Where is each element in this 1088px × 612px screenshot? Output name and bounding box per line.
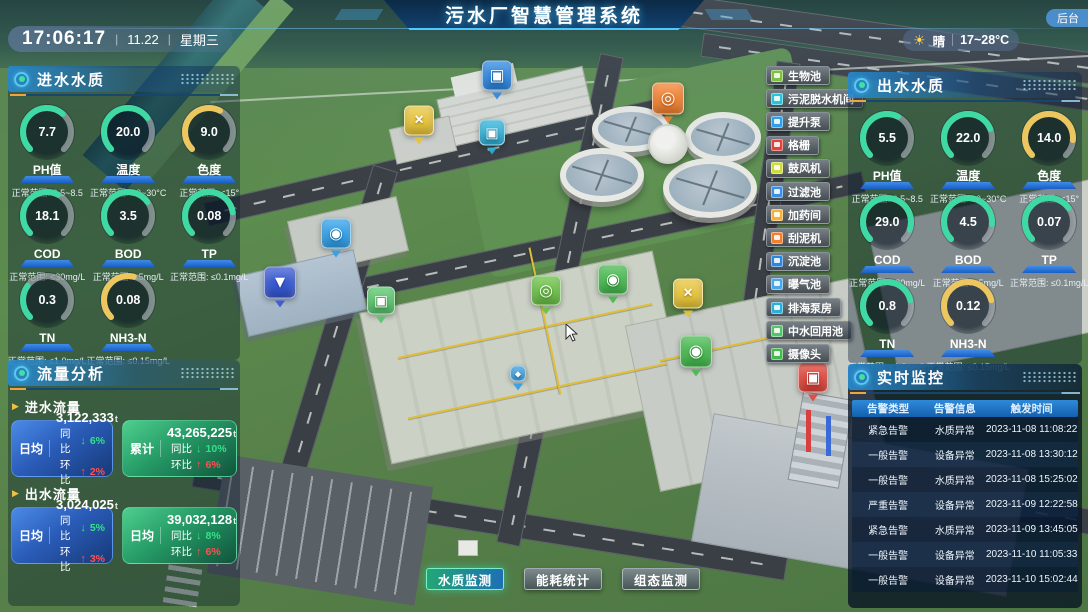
flow-value: 3,122,333 bbox=[56, 410, 114, 425]
clock-time: 17:06:17 bbox=[22, 28, 106, 50]
gauge-label: TN bbox=[848, 335, 926, 357]
alarm-cell: 设备异常 bbox=[924, 497, 985, 512]
realtime-monitor-panel: 实时监控 告警类型告警信息触发时间 紧急告警水质异常2023-11-08 11:… bbox=[848, 364, 1082, 608]
gauge-label: PH值 bbox=[848, 167, 926, 189]
panel-header: 进水水质 bbox=[8, 66, 240, 92]
facility-button-曝气池[interactable]: 曝气池 bbox=[766, 275, 830, 294]
dewatering-icon[interactable]: ▣ bbox=[479, 120, 505, 146]
facility-label: 刮泥机 bbox=[788, 230, 821, 246]
tab-组态监测[interactable]: 组态监测 bbox=[622, 568, 700, 590]
down-arrow-icon: ↓ bbox=[80, 435, 86, 447]
yoy-label: 同比 bbox=[171, 441, 192, 456]
down-arrow-icon: ↓ bbox=[196, 443, 202, 455]
facility-button-过滤池[interactable]: 过滤池 bbox=[766, 182, 830, 201]
facility-icon bbox=[771, 162, 783, 174]
mom-label: 环比 bbox=[171, 457, 192, 472]
lift-pump-icon[interactable]: ◉ bbox=[321, 219, 351, 249]
gauge-COD: 18.1COD正常范围: ≤30mg/L bbox=[8, 188, 86, 270]
separator: | bbox=[115, 32, 118, 46]
label-trapezoid bbox=[182, 260, 236, 267]
down-arrow-icon: ↓ bbox=[196, 530, 202, 542]
unit-label: t bbox=[233, 516, 236, 526]
gauge-value: 20.0 bbox=[100, 104, 156, 160]
gauge-label-text: TN bbox=[879, 337, 895, 351]
separator: | bbox=[168, 32, 171, 46]
mom-label: 环比 bbox=[60, 544, 76, 574]
influent-quality-panel: 进水水质 7.7PH值正常范围: 6.5~8.520.0温度正常范围: 20~3… bbox=[8, 66, 240, 360]
scraper-icon[interactable]: ◎ bbox=[652, 83, 684, 115]
alarm-cell: 一般告警 bbox=[852, 547, 924, 562]
gauge-value: 3.5 bbox=[100, 188, 156, 244]
alarm-column-header: 触发时间 bbox=[985, 401, 1078, 416]
panel-title: 出水水质 bbox=[877, 75, 1014, 96]
alarm-cell: 水质异常 bbox=[924, 472, 985, 487]
mom-value: 2% bbox=[90, 466, 105, 478]
effluent-gauge-grid: 5.5PH值正常范围: 6.5~8.522.0温度正常范围: 20~30°C14… bbox=[848, 102, 1082, 360]
gauge-value: 7.7 bbox=[19, 104, 75, 160]
flow-value: 43,265,225 bbox=[167, 425, 232, 440]
facility-icon bbox=[771, 255, 783, 267]
label-trapezoid bbox=[941, 266, 995, 273]
facility-icon bbox=[771, 278, 783, 290]
flow-sublabel: ▶出水流量 bbox=[12, 484, 236, 503]
facility-label: 排海泵房 bbox=[788, 300, 832, 316]
unit-label: t bbox=[115, 414, 118, 424]
alarm-cell: 一般告警 bbox=[852, 572, 924, 587]
gauge-dial: 4.5 bbox=[940, 194, 996, 250]
alarm-table-body: 紧急告警水质异常2023-11-08 11:08:22一般告警设备异常2023-… bbox=[852, 417, 1078, 592]
label-trapezoid bbox=[101, 344, 155, 351]
gauge-value: 4.5 bbox=[940, 194, 996, 250]
settling-pool-icon-wrap: ▣ bbox=[482, 61, 512, 100]
mom-label: 环比 bbox=[60, 457, 76, 487]
filter-pool-icon[interactable]: ▼ bbox=[264, 267, 296, 299]
app-title-banner: 污水厂智慧管理系统 bbox=[384, 0, 704, 30]
facility-icon bbox=[771, 302, 783, 314]
gauge-TP: 0.08TP正常范围: ≤0.1mg/L bbox=[170, 188, 248, 270]
gauge-温度: 22.0温度正常范围: 20~30°C bbox=[926, 110, 1009, 192]
bio-pool-icon-wrap: ◎ bbox=[531, 276, 561, 315]
panel-title: 实时监控 bbox=[877, 367, 1014, 388]
label-trapezoid bbox=[101, 260, 155, 267]
facility-icon bbox=[771, 209, 783, 221]
flow-cards: 日均3,024,025t同比↓5%环比↑3%日均39,032,128t同比↓8%… bbox=[8, 507, 240, 564]
mom-value: 3% bbox=[90, 553, 105, 565]
gauge-value: 9.0 bbox=[181, 104, 237, 160]
yoy-label: 同比 bbox=[171, 528, 192, 543]
unit-label: t bbox=[115, 501, 118, 511]
gauge-label: BOD bbox=[926, 251, 1009, 273]
camera-icon-2[interactable]: ◉ bbox=[680, 336, 712, 368]
facility-button-加药间[interactable]: 加药间 bbox=[766, 205, 830, 224]
gauge-value: 14.0 bbox=[1021, 110, 1077, 166]
gauge-label-text: TP bbox=[202, 247, 217, 261]
pointer-icon bbox=[683, 311, 693, 318]
gauge-label: TN bbox=[8, 329, 86, 351]
gauge-value: 0.08 bbox=[100, 272, 156, 328]
alarm-row[interactable]: 严重告警设备异常2023-11-09 12:22:58 bbox=[852, 492, 1078, 517]
gauge-dial: 0.12 bbox=[940, 278, 996, 334]
label-trapezoid bbox=[860, 266, 914, 273]
facility-label: 中水回用池 bbox=[788, 323, 843, 339]
gauge-dial: 18.1 bbox=[19, 188, 75, 244]
label-trapezoid bbox=[941, 182, 995, 189]
flow-value: 3,024,025 bbox=[56, 497, 114, 512]
up-arrow-icon: ↑ bbox=[80, 466, 86, 478]
pointer-icon bbox=[376, 317, 386, 324]
facility-label: 鼓风机 bbox=[788, 160, 821, 176]
alarm-cell: 严重告警 bbox=[852, 497, 924, 512]
panel-underline bbox=[850, 392, 1080, 394]
pointer-icon bbox=[331, 251, 341, 258]
gauge-label-text: BOD bbox=[115, 247, 142, 261]
gauge-label-text: COD bbox=[34, 247, 61, 261]
triangle-icon: ▶ bbox=[12, 488, 20, 499]
flow-card: 日均39,032,128t同比↓8%环比↑6% bbox=[122, 507, 237, 564]
lift-pump-icon-wrap: ◉ bbox=[321, 219, 351, 258]
effluent-quality-panel: 出水水质 5.5PH值正常范围: 6.5~8.522.0温度正常范围: 20~3… bbox=[848, 72, 1082, 364]
up-arrow-icon: ↑ bbox=[80, 553, 86, 565]
facility-button-沉淀池[interactable]: 沉淀池 bbox=[766, 252, 830, 271]
yoy-value: 5% bbox=[90, 522, 105, 534]
panel-bullet-icon bbox=[14, 366, 29, 381]
gauge-label: PH值 bbox=[8, 161, 86, 183]
gauge-label-text: 色度 bbox=[197, 163, 221, 177]
unit-label: t bbox=[233, 429, 236, 439]
flow-values: 39,032,128t同比↓8%环比↑6% bbox=[167, 512, 229, 559]
alarm-row[interactable]: 一般告警设备异常2023-11-10 11:05:33 bbox=[852, 542, 1078, 567]
alarm-table: 告警类型告警信息触发时间 紧急告警水质异常2023-11-08 11:08:22… bbox=[852, 400, 1078, 592]
facility-button-中水回用池[interactable]: 中水回用池 bbox=[766, 321, 852, 340]
label-trapezoid bbox=[20, 344, 74, 351]
gauge-dial: 9.0 bbox=[181, 104, 237, 160]
alarm-row[interactable]: 紧急告警水质异常2023-11-08 11:08:22 bbox=[852, 417, 1078, 442]
gauge-value: 18.1 bbox=[19, 188, 75, 244]
facility-icon bbox=[771, 232, 783, 244]
flow-values: 3,122,333t同比↓6%环比↑2% bbox=[56, 410, 105, 487]
facility-icon bbox=[771, 325, 783, 337]
gauge-value: 22.0 bbox=[940, 110, 996, 166]
gauge-label: 色度 bbox=[170, 161, 248, 183]
facility-icon bbox=[771, 348, 783, 360]
alarm-row[interactable]: 紧急告警水质异常2023-11-09 13:45:05 bbox=[852, 517, 1078, 542]
camera-icon[interactable]: ◉ bbox=[598, 265, 628, 295]
weather-bar: ☀ 晴 17~28°C bbox=[903, 29, 1019, 51]
alarm-cell: 一般告警 bbox=[852, 447, 924, 462]
gauge-BOD: 4.5BOD正常范围: ≤5mg/L bbox=[926, 194, 1009, 276]
panel-title: 流量分析 bbox=[37, 363, 172, 384]
mom-value: 6% bbox=[206, 459, 221, 471]
alarm-table-header: 告警类型告警信息触发时间 bbox=[852, 400, 1078, 417]
reuse-pool-icon-wrap: ▣ bbox=[367, 287, 395, 324]
pointer-icon bbox=[492, 93, 502, 100]
panel-bullet-icon bbox=[854, 78, 869, 93]
dots-decoration bbox=[180, 367, 234, 379]
up-arrow-icon: ↑ bbox=[196, 459, 202, 471]
clock-bar: 17:06:17 | 11.22 | 星期三 bbox=[8, 26, 233, 52]
label-trapezoid bbox=[20, 176, 74, 183]
clock-weekday: 星期三 bbox=[180, 30, 219, 49]
yoy-label: 同比 bbox=[60, 426, 76, 456]
gauge-COD: 29.0COD正常范围: ≤30mg/L bbox=[848, 194, 926, 276]
gauge-label: 色度 bbox=[1010, 167, 1088, 189]
dashboard: ▣◎×▣◉▼▣◎◉×◉▣◆ 污水厂智慧管理系统 17:06:17 | 11.22… bbox=[0, 0, 1088, 612]
gauge-dial: 22.0 bbox=[940, 110, 996, 166]
gauge-value: 0.8 bbox=[859, 278, 915, 334]
facility-label: 提升泵 bbox=[788, 114, 821, 130]
yoy-value: 10% bbox=[206, 443, 227, 455]
dewatering-icon-wrap: ▣ bbox=[479, 120, 505, 155]
facility-icon bbox=[771, 70, 783, 82]
panel-bullet-icon bbox=[854, 370, 869, 385]
panel-title: 进水水质 bbox=[37, 69, 172, 90]
clock-date: 11.22 bbox=[127, 32, 159, 47]
gauge-label-text: NH3-N bbox=[110, 331, 147, 345]
gauge-label-text: 温度 bbox=[956, 169, 980, 183]
facility-icon bbox=[771, 139, 783, 151]
mouse-cursor bbox=[565, 324, 579, 342]
temp-range: 17~28°C bbox=[960, 33, 1009, 47]
alarm-cell: 紧急告警 bbox=[852, 422, 924, 437]
facility-label: 格栅 bbox=[788, 137, 810, 153]
gauge-dial: 7.7 bbox=[19, 104, 75, 160]
gauge-label: COD bbox=[8, 245, 86, 267]
tab-label: 水质监测 bbox=[438, 570, 492, 589]
banner-wing-right bbox=[705, 9, 754, 20]
facility-button-生物池[interactable]: 生物池 bbox=[766, 66, 830, 85]
alarm-cell: 设备异常 bbox=[924, 447, 985, 462]
gauge-range: 正常范围: ≤0.1mg/L bbox=[170, 270, 248, 283]
gauge-dial: 14.0 bbox=[1021, 110, 1077, 166]
gauge-dial: 0.08 bbox=[100, 272, 156, 328]
dots-decoration bbox=[1022, 371, 1076, 383]
yoy-value: 8% bbox=[206, 530, 221, 542]
alarm-cell: 2023-11-09 12:22:58 bbox=[985, 499, 1078, 510]
label-trapezoid bbox=[1022, 266, 1076, 273]
gauge-label: TP bbox=[170, 245, 248, 267]
facility-button-摄像头[interactable]: 摄像头 bbox=[766, 344, 830, 363]
alarm-cell: 水质异常 bbox=[924, 522, 985, 537]
pointer-icon bbox=[513, 384, 523, 391]
alarm-cell: 2023-11-10 15:02:44 bbox=[985, 574, 1078, 585]
blower-fan-icon[interactable]: × bbox=[404, 106, 434, 136]
pointer-icon bbox=[608, 297, 618, 304]
gauge-dial: 0.07 bbox=[1021, 194, 1077, 250]
yoy-value: 6% bbox=[90, 435, 105, 447]
gauge-PH值: 7.7PH值正常范围: 6.5~8.5 bbox=[8, 104, 86, 186]
label-trapezoid bbox=[860, 350, 914, 357]
flow-card: 累计43,265,225t同比↓10%环比↑6% bbox=[122, 420, 237, 477]
outfall-pump-icon-wrap: ◆ bbox=[510, 366, 526, 391]
flow-value: 39,032,128 bbox=[167, 512, 232, 527]
gauge-label: COD bbox=[848, 251, 926, 273]
gauge-label-text: NH3-N bbox=[950, 337, 987, 351]
aeration-fan-icon[interactable]: × bbox=[673, 279, 703, 309]
outfall-pump-icon[interactable]: ◆ bbox=[510, 366, 526, 382]
blower-fan-icon-wrap: × bbox=[404, 106, 434, 145]
gauge-value: 5.5 bbox=[859, 110, 915, 166]
divider bbox=[952, 34, 953, 46]
label-trapezoid bbox=[101, 176, 155, 183]
pointer-icon bbox=[691, 370, 701, 377]
gauge-label-text: TP bbox=[1042, 253, 1057, 267]
flow-sublabel: ▶进水流量 bbox=[12, 397, 236, 416]
backend-button[interactable]: 后台 bbox=[1046, 9, 1088, 27]
alarm-cell: 2023-11-08 15:25:02 bbox=[985, 474, 1078, 485]
facility-button-刮泥机[interactable]: 刮泥机 bbox=[766, 228, 830, 247]
panel-header: 实时监控 bbox=[848, 364, 1082, 390]
facility-button-提升泵[interactable]: 提升泵 bbox=[766, 112, 830, 131]
tab-能耗统计[interactable]: 能耗统计 bbox=[524, 568, 602, 590]
camera-icon-wrap: ◉ bbox=[598, 265, 628, 304]
dots-decoration bbox=[180, 73, 234, 85]
flow-group-出水流量: ▶出水流量日均3,024,025t同比↓5%环比↑3%日均39,032,128t… bbox=[8, 484, 240, 564]
alarm-cell: 设备异常 bbox=[924, 572, 985, 587]
scraper-icon-wrap: ◎ bbox=[652, 83, 684, 124]
alarm-cell: 2023-11-10 11:05:33 bbox=[985, 549, 1078, 560]
gauge-label: 温度 bbox=[926, 167, 1009, 189]
facility-label: 过滤池 bbox=[788, 184, 821, 200]
alarm-cell: 紧急告警 bbox=[852, 522, 924, 537]
flow-stat-label: 日均 bbox=[19, 527, 50, 544]
gauge-label: TP bbox=[1010, 251, 1088, 273]
panel-header: 流量分析 bbox=[8, 360, 240, 386]
mom-label: 环比 bbox=[171, 544, 192, 559]
label-trapezoid bbox=[860, 182, 914, 189]
gauge-dial: 3.5 bbox=[100, 188, 156, 244]
filter-pool-icon-wrap: ▼ bbox=[264, 267, 296, 308]
weather-condition: 晴 bbox=[933, 31, 946, 50]
dots-decoration bbox=[1022, 79, 1076, 91]
facility-button-排海泵房[interactable]: 排海泵房 bbox=[766, 298, 841, 317]
gauge-dial: 0.8 bbox=[859, 278, 915, 334]
alarm-cell: 设备异常 bbox=[924, 547, 985, 562]
gauge-value: 0.08 bbox=[181, 188, 237, 244]
label-trapezoid bbox=[941, 350, 995, 357]
facility-label: 加药间 bbox=[788, 207, 821, 223]
gauge-value: 0.07 bbox=[1021, 194, 1077, 250]
label-trapezoid bbox=[1022, 182, 1076, 189]
sun-icon: ☀ bbox=[913, 32, 926, 49]
gauge-label: 温度 bbox=[86, 161, 169, 183]
page-title: 污水厂智慧管理系统 bbox=[445, 1, 643, 28]
gauge-TN: 0.8TN正常范围: ≤1.0mg/L bbox=[848, 278, 926, 360]
influent-gauge-grid: 7.7PH值正常范围: 6.5~8.520.0温度正常范围: 20~30°C9.… bbox=[8, 96, 240, 354]
alarm-column-header: 告警类型 bbox=[852, 401, 924, 416]
panel-bullet-icon bbox=[14, 72, 29, 87]
facility-button-鼓风机[interactable]: 鼓风机 bbox=[766, 159, 830, 178]
flow-stat-label: 日均 bbox=[19, 440, 50, 457]
flow-card: 日均3,122,333t同比↓6%环比↑2% bbox=[11, 420, 113, 477]
alarm-row[interactable]: 一般告警设备异常2023-11-10 15:02:44 bbox=[852, 567, 1078, 592]
gauge-NH3-N: 0.08NH3-N正常范围: ≤0.15mg/L bbox=[86, 272, 169, 354]
facility-icon bbox=[771, 116, 783, 128]
facility-button-格栅[interactable]: 格栅 bbox=[766, 136, 819, 155]
up-arrow-icon: ↑ bbox=[196, 546, 202, 558]
flow-card: 日均3,024,025t同比↓5%环比↑3% bbox=[11, 507, 113, 564]
reuse-pool-icon[interactable]: ▣ bbox=[367, 287, 395, 315]
aeration-fan-icon-wrap: × bbox=[673, 279, 703, 318]
flow-groups: ▶进水流量日均3,122,333t同比↓6%环比↑2%累计43,265,225t… bbox=[8, 397, 240, 564]
flow-stat-label: 日均 bbox=[130, 527, 161, 544]
gauge-色度: 14.0色度正常范围: <15° bbox=[1010, 110, 1088, 192]
gauge-value: 0.3 bbox=[19, 272, 75, 328]
gauge-TN: 0.3TN正常范围: ≤1.0mg/L bbox=[8, 272, 86, 354]
tab-label: 能耗统计 bbox=[536, 570, 590, 589]
backend-label: 后台 bbox=[1057, 10, 1079, 26]
gauge-value: 0.12 bbox=[940, 278, 996, 334]
alarm-cell: 水质异常 bbox=[924, 422, 985, 437]
pointer-icon bbox=[663, 117, 673, 124]
label-trapezoid bbox=[20, 260, 74, 267]
facility-label: 曝气池 bbox=[788, 276, 821, 292]
gauge-PH值: 5.5PH值正常范围: 6.5~8.5 bbox=[848, 110, 926, 192]
gauge-温度: 20.0温度正常范围: 20~30°C bbox=[86, 104, 169, 186]
label-trapezoid bbox=[182, 176, 236, 183]
bio-pool-icon[interactable]: ◎ bbox=[531, 276, 561, 306]
gauge-色度: 9.0色度正常范围: <15° bbox=[170, 104, 248, 186]
triangle-icon: ▶ bbox=[12, 401, 20, 412]
gauge-label-text: 温度 bbox=[116, 163, 140, 177]
gauge-dial: 5.5 bbox=[859, 110, 915, 166]
gauge-dial: 29.0 bbox=[859, 194, 915, 250]
alarm-cell: 2023-11-09 13:45:05 bbox=[985, 524, 1078, 535]
gauge-NH3-N: 0.12NH3-N正常范围: ≤0.15mg/L bbox=[926, 278, 1009, 360]
facility-label: 摄像头 bbox=[788, 346, 821, 362]
gauge-label-text: PH值 bbox=[873, 169, 902, 183]
bottom-tab-bar: 水质监测能耗统计组态监测 bbox=[426, 568, 700, 590]
panel-header: 出水水质 bbox=[848, 72, 1082, 98]
gauge-label: NH3-N bbox=[86, 329, 169, 351]
gauge-dial: 0.3 bbox=[19, 272, 75, 328]
alarm-column-header: 告警信息 bbox=[924, 401, 985, 416]
facility-icon bbox=[771, 186, 783, 198]
flow-analysis-panel: 流量分析 ▶进水流量日均3,122,333t同比↓6%环比↑2%累计43,265… bbox=[8, 360, 240, 606]
gauge-label-text: COD bbox=[874, 253, 901, 267]
gauge-TP: 0.07TP正常范围: ≤0.1mg/L bbox=[1010, 194, 1088, 276]
gauge-range: 正常范围: ≤0.1mg/L bbox=[1010, 276, 1088, 289]
banner-wing-left bbox=[335, 9, 384, 20]
gauge-dial: 0.08 bbox=[181, 188, 237, 244]
flow-values: 3,024,025t同比↓5%环比↑3% bbox=[56, 497, 105, 574]
gauge-label: NH3-N bbox=[926, 335, 1009, 357]
gauge-value: 29.0 bbox=[859, 194, 915, 250]
tab-水质监测[interactable]: 水质监测 bbox=[426, 568, 504, 590]
tab-label: 组态监测 bbox=[634, 570, 688, 589]
settling-pool-icon[interactable]: ▣ bbox=[482, 61, 512, 91]
alarm-cell: 2023-11-08 11:08:22 bbox=[985, 424, 1078, 435]
gauge-dial: 20.0 bbox=[100, 104, 156, 160]
down-arrow-icon: ↓ bbox=[80, 522, 86, 534]
alarm-cell: 一般告警 bbox=[852, 472, 924, 487]
facility-icon bbox=[771, 93, 783, 105]
flow-stat-label: 累计 bbox=[130, 440, 161, 457]
flow-group-进水流量: ▶进水流量日均3,122,333t同比↓6%环比↑2%累计43,265,225t… bbox=[8, 397, 240, 477]
alarm-row[interactable]: 一般告警水质异常2023-11-08 15:25:02 bbox=[852, 467, 1078, 492]
pointer-icon bbox=[541, 308, 551, 315]
panel-underline bbox=[10, 388, 238, 390]
facility-label: 生物池 bbox=[788, 68, 821, 84]
flow-values: 43,265,225t同比↓10%环比↑6% bbox=[167, 425, 229, 472]
gauge-label: BOD bbox=[86, 245, 169, 267]
alarm-row[interactable]: 一般告警设备异常2023-11-08 13:30:12 bbox=[852, 442, 1078, 467]
yoy-label: 同比 bbox=[60, 513, 76, 543]
alarm-cell: 2023-11-08 13:30:12 bbox=[985, 449, 1078, 460]
gauge-label-text: 色度 bbox=[1037, 169, 1061, 183]
camera-icon-2-wrap: ◉ bbox=[680, 336, 712, 377]
pointer-icon bbox=[275, 301, 285, 308]
facility-label: 沉淀池 bbox=[788, 253, 821, 269]
